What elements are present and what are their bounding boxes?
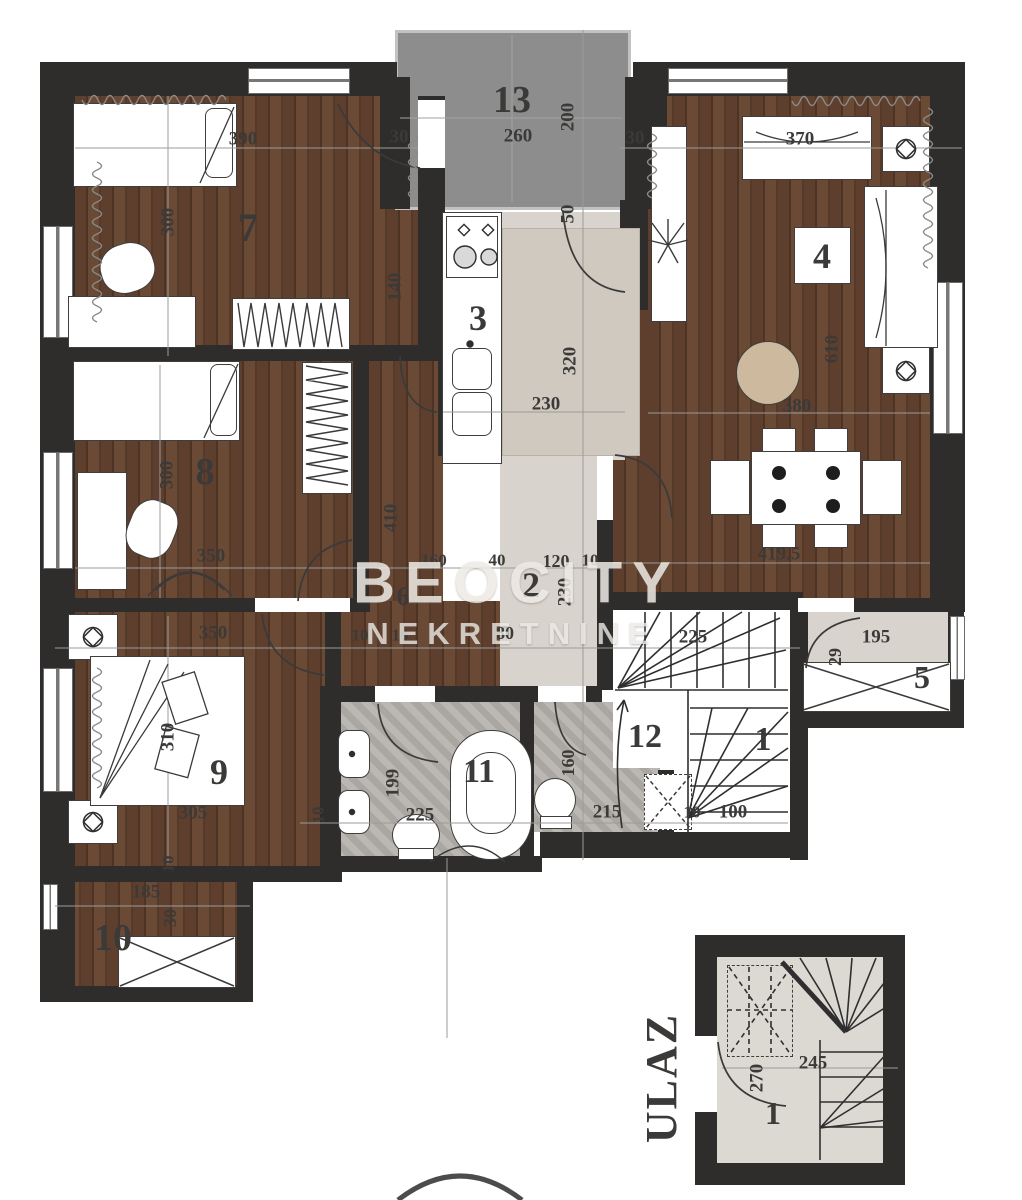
dimension-label: 160 [559,750,577,777]
plan-linework [0,0,1022,1200]
dimension-label: 50 [559,205,578,224]
dimension-label: 10 [392,627,409,644]
dimension-label: 200 [559,103,578,132]
dining-table-settings [772,466,840,513]
dimension-label: 300 [159,208,178,237]
dimension-label: 10 [160,856,177,873]
dimension-label: 120 [543,552,570,570]
room-number-label: 4 [813,238,831,274]
room-number-label: 2 [522,567,540,603]
dimension-label: 10 [582,552,599,569]
dimension-label: 390 [229,130,258,149]
dimension-label: 30 [626,129,645,148]
dimension-label: 260 [504,127,533,146]
dimension-label: 270 [748,1064,767,1093]
dimension-label: 370 [786,130,815,149]
dimension-label: 245 [799,1054,828,1073]
entrance-label: ULAZ [640,1013,684,1143]
dimension-label: 30 [161,909,179,927]
dimension-label: 185 [132,883,161,902]
room-number-label: 6 [397,584,410,610]
dimension-label: 215 [593,803,622,822]
room-number-label: 11 [463,755,495,789]
floor-plan: 1374382651911121013903026030200370300140… [0,0,1022,1200]
dimension-label: 300 [158,461,177,490]
bed-details [100,107,886,798]
room-number-label: 5 [914,661,930,693]
dimension-label: 195 [862,628,891,647]
bottom-partial-circle [398,1176,522,1200]
room-number-label: 9 [210,754,228,790]
room-number-label: 3 [469,300,487,336]
dimension-label: 350 [197,547,226,566]
room-number-label: 13 [493,81,531,119]
room-number-label: 8 [196,453,215,491]
dimension-label: 10 [684,804,701,821]
dimension-lines [55,30,962,1068]
room-number-label: 10 [94,919,132,957]
plant-and-fan-glyphs [148,219,688,862]
dimension-label: 225 [406,806,435,825]
dimension-label: 419.5 [758,545,801,564]
room-number-label: 1 [765,1097,781,1129]
insulation-squiggles [82,96,933,789]
x-crosses [120,664,949,986]
dimension-label: 230 [556,578,575,607]
room-number-label: 7 [238,208,258,248]
dimension-label: 40 [489,552,506,569]
dimension-label: 199 [384,769,403,798]
dimension-label: 225 [679,628,708,647]
dimension-label: 410 [382,504,401,533]
dimension-label: 305 [179,804,208,823]
dimension-label: 160 [421,552,447,569]
dimension-label: 29 [826,648,844,666]
wardrobe-hangers [238,303,348,485]
dimension-label: 380 [783,397,812,416]
dimension-label: 610 [823,335,842,364]
dimension-label: 30 [390,128,409,147]
dimension-label: 10 [310,807,327,824]
dimension-label: 140 [386,273,405,302]
dimension-label: 10 [352,627,369,644]
dimension-label: 310 [159,723,178,752]
room-number-label: 1 [755,723,772,757]
dimension-label: 230 [532,395,561,414]
dimension-label: 350 [199,624,228,643]
dimension-label: 320 [561,347,580,376]
dimension-label: 100 [719,803,748,822]
dimension-label: 80 [496,624,514,642]
room-number-label: 12 [628,720,662,754]
